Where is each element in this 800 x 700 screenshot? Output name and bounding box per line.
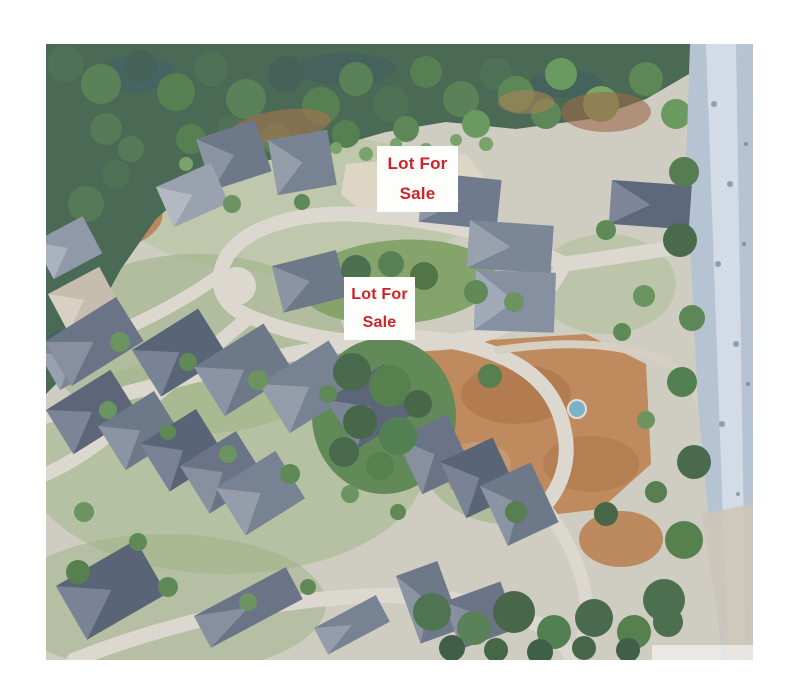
lot-for-sale-label-upper: Lot For Sale <box>377 146 458 212</box>
dirt-patch-lower-right <box>579 511 663 567</box>
watermark-strip <box>652 645 753 660</box>
lot-for-sale-text-line1: Lot For <box>351 281 408 309</box>
aerial-photo: Lot For Sale Lot For Sale <box>46 44 753 660</box>
house <box>268 130 337 196</box>
lot-for-sale-text-line2: Sale <box>400 179 436 209</box>
lot-for-sale-text-line1: Lot For <box>388 149 448 179</box>
house <box>609 180 692 229</box>
cul-de-sac-bulb <box>218 267 256 305</box>
aerial-scene <box>46 44 753 660</box>
lot-for-sale-label-lower: Lot For Sale <box>344 277 415 340</box>
house <box>467 220 554 274</box>
lot-for-sale-text-line2: Sale <box>363 309 397 337</box>
pool <box>568 400 586 418</box>
